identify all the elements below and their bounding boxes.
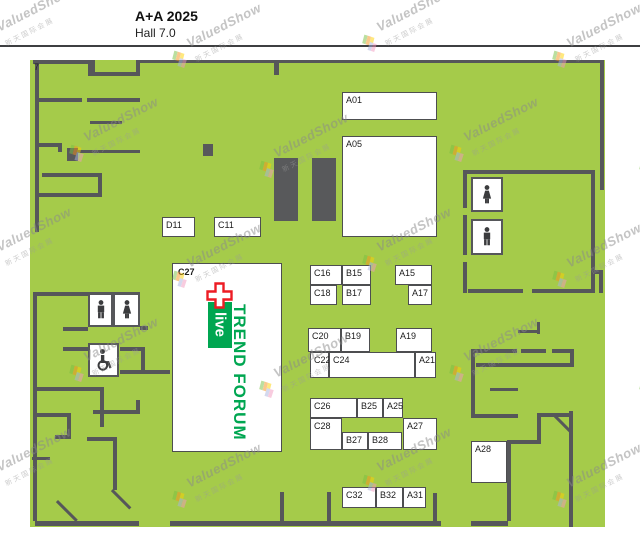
wall-segment xyxy=(113,437,117,490)
wall-segment xyxy=(507,440,511,521)
page-title: A+A 2025 xyxy=(135,8,198,24)
wall-segment xyxy=(591,170,595,293)
wall-segment xyxy=(433,493,437,521)
wall-segment xyxy=(475,414,518,418)
wall-segment xyxy=(58,143,62,152)
wall-segment xyxy=(463,170,467,208)
booth-a31[interactable]: A31 xyxy=(403,487,426,508)
womens-restroom xyxy=(113,293,140,327)
booth-label: A17 xyxy=(412,288,428,298)
wall-segment xyxy=(136,400,140,412)
wall-segment xyxy=(463,170,595,174)
booth-b17[interactable]: B17 xyxy=(342,285,371,305)
wall-segment xyxy=(170,521,441,526)
valuedshow-logo-icon xyxy=(0,246,4,276)
wall-segment xyxy=(63,327,88,331)
wall-segment xyxy=(521,349,546,353)
booth-label: C18 xyxy=(314,288,331,298)
booth-label: C28 xyxy=(314,421,331,431)
wall-segment xyxy=(274,63,279,75)
man-icon xyxy=(479,225,495,249)
booth-label: C32 xyxy=(346,490,363,500)
booth-label: A25 xyxy=(387,401,403,411)
wall-segment xyxy=(463,262,467,293)
booth-d11[interactable]: D11 xyxy=(162,217,195,237)
booth-label: A01 xyxy=(346,95,362,105)
hall-subtitle: Hall 7.0 xyxy=(135,26,176,40)
booth-label: A05 xyxy=(346,139,362,149)
booth-c16[interactable]: C16 xyxy=(310,265,342,285)
booth-label: A27 xyxy=(407,421,423,431)
booth-a21[interactable]: A21 xyxy=(415,352,436,378)
live-logo-text: live xyxy=(213,312,228,337)
booth-label: C11 xyxy=(218,220,234,230)
wall-segment xyxy=(570,349,574,367)
booth-label: C16 xyxy=(314,268,331,278)
womens-restroom xyxy=(471,177,503,212)
pillar xyxy=(67,148,78,161)
watermark-subtext: 新天国际会展 xyxy=(384,17,435,48)
valuedshow-watermark: ValuedShow新天国际会展 xyxy=(630,110,640,186)
wall-segment xyxy=(463,215,467,255)
wall-segment xyxy=(518,330,540,333)
pillar xyxy=(203,144,213,156)
booth-label: A31 xyxy=(407,490,423,500)
wall-segment xyxy=(599,270,603,293)
booth-a05[interactable]: A05 xyxy=(342,136,437,237)
wall-segment xyxy=(140,60,604,63)
booth-c28[interactable]: C28 xyxy=(310,418,342,450)
wall-segment xyxy=(490,388,518,391)
wall-segment xyxy=(37,193,102,197)
booth-label: B25 xyxy=(361,401,377,411)
wall-segment xyxy=(67,413,71,437)
wall-segment xyxy=(471,349,475,418)
valuedshow-logo-icon xyxy=(0,26,4,56)
booth-c22[interactable]: C22 xyxy=(310,352,329,378)
mens-restroom xyxy=(88,293,113,327)
booth-c26[interactable]: C26 xyxy=(310,398,357,418)
wall-segment xyxy=(87,98,140,102)
aplusa-live-cross-icon xyxy=(206,282,233,309)
watermark-subtext: 新天国际会展 xyxy=(4,17,55,48)
booth-label: B28 xyxy=(372,435,388,445)
booth-label: C26 xyxy=(314,401,331,411)
booth-c11[interactable]: C11 xyxy=(214,217,261,237)
valuedshow-logo-icon xyxy=(0,466,4,496)
wall-segment xyxy=(532,289,595,293)
watermark-text: ValuedShow xyxy=(564,0,640,50)
booth-label: A19 xyxy=(400,331,416,341)
wall-segment xyxy=(78,150,140,153)
wall-segment xyxy=(471,349,517,353)
booth-label: C20 xyxy=(312,331,329,341)
wall-segment xyxy=(476,363,570,367)
booth-b32[interactable]: B32 xyxy=(376,487,403,508)
wall-segment xyxy=(537,413,541,443)
wall-segment xyxy=(33,292,37,521)
wall-segment xyxy=(33,60,88,64)
booth-b19[interactable]: B19 xyxy=(341,328,370,352)
booth-c24[interactable]: C24 xyxy=(329,352,415,378)
booth-label: B15 xyxy=(346,268,362,278)
wall-segment xyxy=(37,413,70,417)
booth-label: A21 xyxy=(419,355,435,365)
wall-segment xyxy=(100,390,104,427)
booth-label: A15 xyxy=(399,268,415,278)
booth-c27-trend-forum[interactable]: C27 live TREND FORUM xyxy=(172,263,282,452)
valuedshow-logo-icon xyxy=(355,26,384,56)
woman-icon xyxy=(479,183,495,207)
booth-a28[interactable]: A28 xyxy=(471,441,507,483)
wall-segment xyxy=(280,492,284,521)
booth-label: C24 xyxy=(333,355,350,365)
booth-c20[interactable]: C20 xyxy=(308,328,341,352)
wall-segment xyxy=(90,121,122,124)
wall-segment xyxy=(120,370,170,374)
valuedshow-watermark: ValuedShow新天国际会展 xyxy=(0,0,81,60)
wall-segment xyxy=(35,64,39,232)
booth-c18[interactable]: C18 xyxy=(310,285,337,305)
booth-label: B27 xyxy=(346,435,362,445)
pillar xyxy=(312,158,336,221)
wall-segment xyxy=(468,289,523,293)
booth-b15[interactable]: B15 xyxy=(342,265,371,285)
booth-a17[interactable]: A17 xyxy=(408,285,432,305)
booth-label: A28 xyxy=(475,444,491,454)
booth-a01[interactable]: A01 xyxy=(342,92,437,120)
header-divider xyxy=(0,45,640,47)
valuedshow-logo-icon xyxy=(632,152,640,182)
booth-label: B32 xyxy=(380,490,396,500)
man-icon xyxy=(93,298,109,322)
valuedshow-watermark: ValuedShow新天国际会展 xyxy=(630,330,640,406)
wall-segment xyxy=(88,60,95,76)
wall-segment xyxy=(600,63,604,190)
trend-forum-title: TREND FORUM xyxy=(229,304,249,444)
wall-segment xyxy=(63,347,88,351)
booth-c32[interactable]: C32 xyxy=(342,487,376,508)
wall-segment xyxy=(93,410,140,414)
wheelchair-icon xyxy=(94,348,114,372)
wall-segment xyxy=(42,173,102,177)
wall-segment xyxy=(327,492,331,521)
wall-segment xyxy=(95,72,140,76)
booth-b28[interactable]: B28 xyxy=(368,432,402,450)
watermark-text: ValuedShow xyxy=(374,0,454,34)
wall-segment xyxy=(140,326,148,330)
booth-a19[interactable]: A19 xyxy=(396,328,432,352)
wall-segment xyxy=(55,435,71,439)
booth-a27[interactable]: A27 xyxy=(403,418,437,450)
booth-label: B19 xyxy=(345,331,361,341)
hall-number-label: 7 xyxy=(34,62,39,72)
valuedshow-logo-icon xyxy=(632,372,640,402)
woman-icon xyxy=(119,298,135,322)
watermark-text: ValuedShow xyxy=(0,0,74,34)
booth-label: C27 xyxy=(178,267,195,277)
booth-a15[interactable]: A15 xyxy=(395,265,432,285)
accessible-restroom xyxy=(88,343,119,377)
valuedshow-watermark: ValuedShow新天国际会展 xyxy=(353,0,461,60)
wall-segment xyxy=(39,98,82,102)
pillar xyxy=(274,158,298,221)
wall-segment xyxy=(33,387,104,391)
booth-a25[interactable]: A25 xyxy=(383,398,403,418)
wall-segment xyxy=(507,440,541,444)
wall-segment xyxy=(35,521,139,526)
wall-segment xyxy=(32,457,50,460)
booth-b25[interactable]: B25 xyxy=(357,398,383,418)
wall-segment xyxy=(471,521,508,526)
booth-b27[interactable]: B27 xyxy=(342,432,368,450)
booth-label: D11 xyxy=(166,220,182,230)
mens-restroom xyxy=(471,219,503,255)
floorplan-page: A+A 2025 Hall 7.0 7 A01A05D11C11C16B15A1… xyxy=(0,0,640,557)
booth-label: B17 xyxy=(346,288,362,298)
